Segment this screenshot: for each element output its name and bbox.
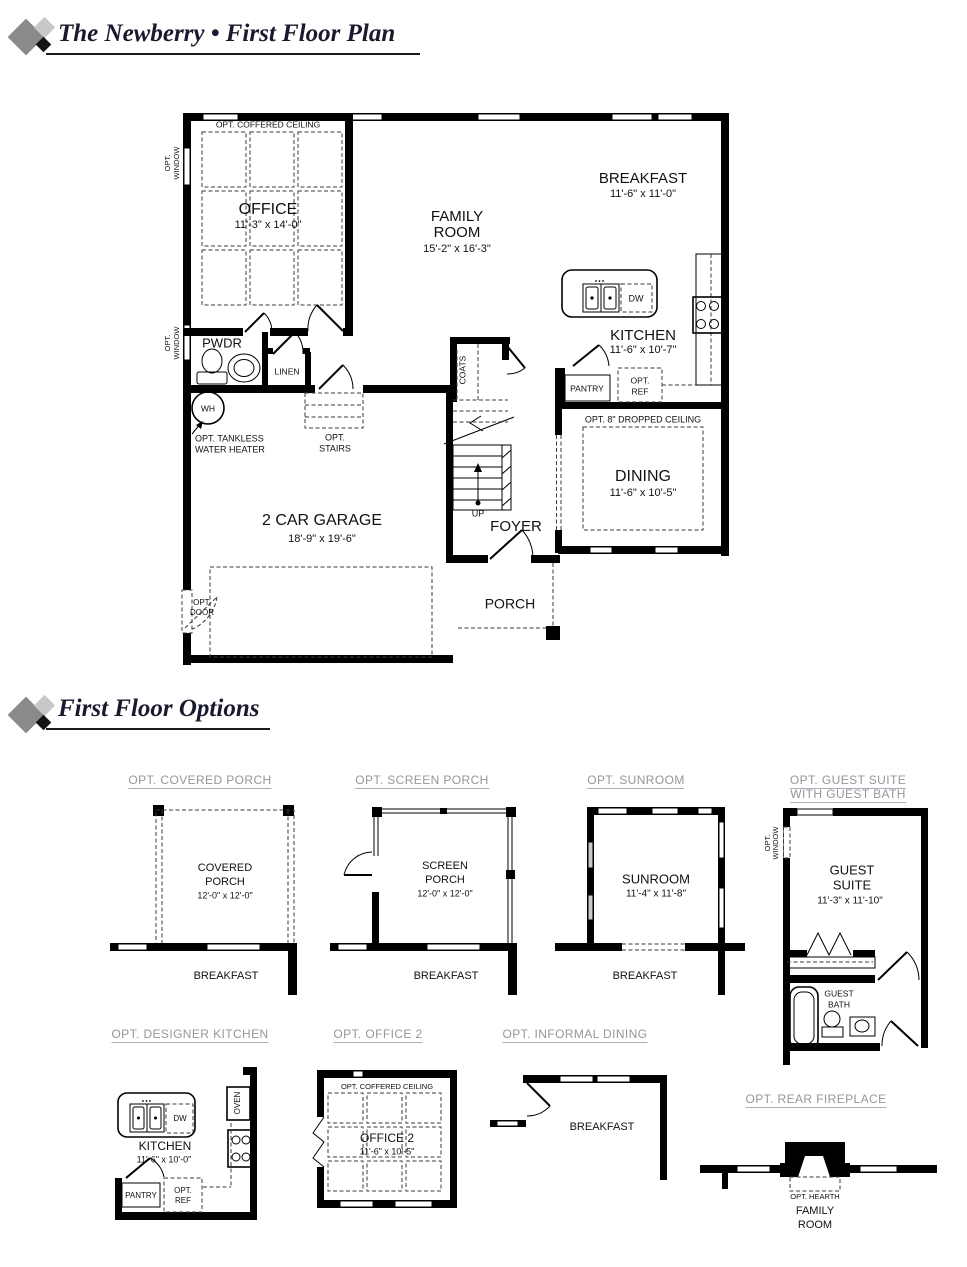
informal-dining-header: OPT. INFORMAL DINING bbox=[503, 1027, 648, 1043]
covered-porch-label-2: PORCH bbox=[205, 876, 245, 888]
pantry-label: PANTRY bbox=[570, 383, 604, 393]
rf-family-room-label-1: FAMILY bbox=[796, 1205, 835, 1217]
office2-dims: 11'-6" x 10'-5" bbox=[360, 1146, 415, 1156]
opt-stairs-label-2: STAIRS bbox=[319, 443, 351, 453]
covered-porch-label-1: COVERED bbox=[198, 862, 252, 874]
garage-label: 2 CAR GARAGE bbox=[262, 512, 382, 529]
wh-label: WH bbox=[201, 403, 215, 413]
office-dims: 11'-3" x 14'-0" bbox=[235, 219, 302, 231]
dk-pantry-label: PANTRY bbox=[125, 1191, 157, 1200]
screen-porch-breakfast-label: BREAKFAST bbox=[414, 970, 479, 982]
sunroom-label: SUNROOM bbox=[622, 871, 690, 886]
kitchen-label: KITCHEN bbox=[610, 327, 676, 344]
office2-header: OPT. OFFICE 2 bbox=[333, 1027, 422, 1043]
office-label: OFFICE bbox=[239, 201, 298, 218]
fireplace-icon bbox=[780, 1142, 850, 1177]
opt-door-label-1: OPT. bbox=[193, 598, 211, 607]
options-title: First Floor Options bbox=[58, 695, 259, 723]
garage-pad bbox=[210, 567, 432, 657]
dropped-ceiling-label: OPT. 8" DROPPED CEILING bbox=[585, 414, 701, 424]
designer-kitchen-header: OPT. DESIGNER KITCHEN bbox=[111, 1027, 268, 1043]
opt-rear-fireplace-plan: OPT. HEARTH FAMILY ROOM bbox=[690, 1085, 960, 1240]
options-underline bbox=[46, 728, 270, 730]
dining-label: DINING bbox=[615, 468, 671, 485]
opt-sunroom-plan: SUNROOM 11'-4" x 11'-8" BREAKFAST bbox=[550, 800, 750, 1000]
kitchen-dims: 11'-6" x 10'-7" bbox=[610, 344, 677, 356]
informal-dining-breakfast-label: BREAKFAST bbox=[570, 1121, 635, 1133]
sunroom-header: OPT. SUNROOM bbox=[587, 773, 684, 789]
linen-label: LINEN bbox=[274, 366, 299, 376]
family-room-dims: 15'-2" x 16'-3" bbox=[423, 243, 491, 255]
screen-porch-header: OPT. SCREEN PORCH bbox=[355, 773, 489, 789]
dk-dw-label: DW bbox=[173, 1114, 187, 1123]
opt-door-label-2: DOOR bbox=[190, 608, 214, 617]
dining-dims: 11'-6" x 10'-5" bbox=[610, 487, 677, 499]
opt-informal-dining-plan: BREAKFAST bbox=[490, 1060, 680, 1200]
diamond-motif-top bbox=[5, 10, 57, 58]
porch-label: PORCH bbox=[485, 596, 536, 612]
opt-stairs bbox=[305, 393, 363, 428]
opt-window-label-2b: WINDOW bbox=[172, 326, 181, 360]
floor-plan-page: The Newberry • First Floor Plan bbox=[0, 0, 967, 1267]
office2-ceiling-label: OPT. COFFERED CEILING bbox=[341, 1082, 433, 1091]
guest-suite-label-2: SUITE bbox=[833, 877, 872, 892]
screen-porch-dims: 12'-0" x 12'-0" bbox=[417, 888, 472, 898]
opt-hearth-box bbox=[790, 1177, 840, 1191]
sink-icon bbox=[228, 354, 260, 382]
oven-label: OVEN bbox=[233, 1091, 242, 1114]
breakfast-dims: 11'-6" x 11'-0" bbox=[610, 188, 676, 200]
kitchen-counter-range bbox=[662, 254, 727, 385]
guest-bath-label-1: GUEST bbox=[824, 988, 853, 998]
dk-ref-label-1: OPT. bbox=[174, 1186, 192, 1195]
opt-ref-label-2: REF bbox=[632, 386, 649, 396]
dk-ref-label-2: REF bbox=[175, 1196, 191, 1205]
tankless-label-2: WATER HEATER bbox=[195, 444, 265, 454]
opt-screen-porch-plan: SCREEN PORCH 12'-0" x 12'-0" BREAKFAST bbox=[330, 800, 560, 1000]
screen-porch-label-2: PORCH bbox=[425, 874, 465, 886]
opt-ref-label-1: OPT. bbox=[631, 375, 650, 385]
covered-porch-dims: 12'-0" x 12'-0" bbox=[197, 890, 252, 900]
covered-porch-breakfast-label: BREAKFAST bbox=[194, 970, 259, 982]
opt-window-label-1b: WINDOW bbox=[172, 146, 181, 180]
opt-hearth-label: OPT. HEARTH bbox=[790, 1192, 839, 1201]
office-ceiling-label: OPT. COFFERED CEILING bbox=[216, 119, 320, 129]
guest-bath-label-2: BATH bbox=[828, 999, 850, 1009]
opt-guest-suite-plan: GUEST SUITE 11'-3" x 11'-10" GUEST BATH … bbox=[755, 775, 967, 1075]
covered-porch-header: OPT. COVERED PORCH bbox=[128, 773, 271, 789]
door-swings bbox=[185, 305, 609, 630]
opt-window-label-1a: OPT. bbox=[163, 155, 172, 172]
guest-suite-dims: 11'-3" x 11'-10" bbox=[817, 896, 883, 907]
family-room-label-2: ROOM bbox=[434, 224, 481, 241]
main-floor-plan: OPT. COFFERED CEILING OFFICE 11'-3" x 14… bbox=[145, 100, 745, 675]
coats-label: COATS bbox=[457, 355, 467, 384]
sunroom-dims: 11'-4" x 11'-8" bbox=[626, 889, 686, 900]
pwdr-label: PWDR bbox=[202, 335, 242, 350]
guest-opt-window-label-b: WINDOW bbox=[771, 826, 780, 860]
dw-label: DW bbox=[629, 293, 644, 303]
opt-window-label-2a: OPT. bbox=[163, 335, 172, 352]
guest-suite-label-1: GUEST bbox=[830, 862, 875, 877]
opt-designer-kitchen-plan: OVEN DW KITCHEN 11'-6" x 10'-0" PANTRY O… bbox=[100, 1055, 270, 1240]
office2-label: OFFICE 2 bbox=[360, 1131, 414, 1145]
screen-porch-label-1: SCREEN bbox=[422, 860, 468, 872]
opt-covered-porch-plan: COVERED PORCH 12'-0" x 12'-0" BREAKFAST bbox=[110, 800, 340, 1000]
sunroom-breakfast-label: BREAKFAST bbox=[613, 970, 678, 982]
garage-dims: 18'-9" x 19'-6" bbox=[288, 533, 356, 545]
page-title: The Newberry • First Floor Plan bbox=[58, 20, 395, 48]
rf-family-room-label-2: ROOM bbox=[798, 1219, 832, 1231]
breakfast-label: BREAKFAST bbox=[599, 170, 687, 187]
opt-office2-plan: OPT. COFFERED CEILING OFFICE 2 11'-6" x … bbox=[310, 1060, 470, 1220]
family-room-label-1: FAMILY bbox=[431, 208, 483, 225]
up-label: UP bbox=[472, 508, 485, 518]
dk-kitchen-dims: 11'-6" x 10'-0" bbox=[137, 1154, 192, 1164]
dk-kitchen-label: KITCHEN bbox=[139, 1139, 192, 1153]
title-underline bbox=[46, 53, 420, 55]
opt-stairs-label-1: OPT. bbox=[325, 432, 345, 442]
toilet-icon bbox=[197, 349, 227, 384]
foyer-label: FOYER bbox=[490, 518, 542, 535]
tankless-label-1: OPT. TANKLESS bbox=[195, 433, 264, 443]
